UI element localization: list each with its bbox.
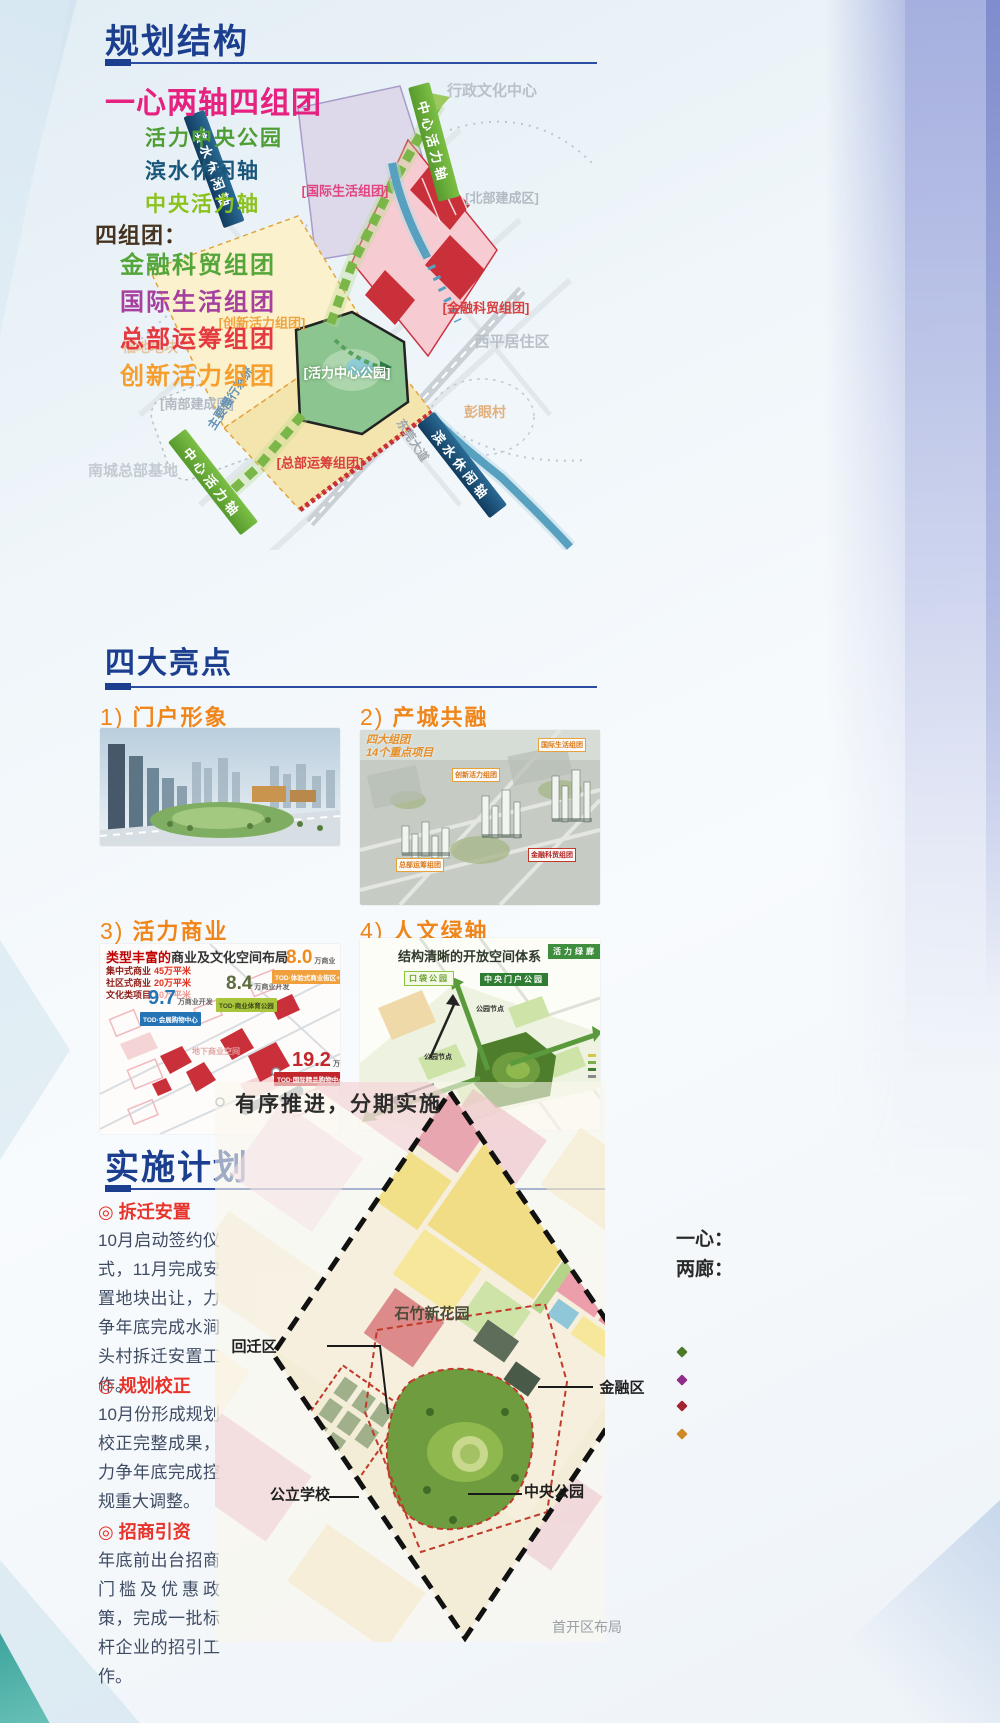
legend-diamond-orange bbox=[676, 1428, 687, 1439]
stat-2-label: 社区式商业 bbox=[106, 978, 151, 988]
section-rule bbox=[105, 62, 597, 64]
highlight-2-header: 2)产城共融 bbox=[360, 700, 488, 732]
phasing-map-illustration bbox=[215, 1082, 605, 1642]
context-arc-2 bbox=[450, 122, 592, 163]
central-gateway-park-chip: 中央门户公园 bbox=[480, 973, 548, 986]
side-label-one-heart: 一心： bbox=[676, 1224, 733, 1251]
marker-9-7: 9.7万商业开发 bbox=[148, 988, 213, 1009]
imp-block-3-body: 年底前出台招商门槛及优惠政策，完成一批标杆企业的招引工作。 bbox=[98, 1546, 220, 1691]
right-edge-strip bbox=[986, 0, 1000, 1000]
green-corridor-banner: 活力绿廊 bbox=[548, 944, 600, 959]
side-label-two-corridors: 两廊： bbox=[676, 1254, 733, 1281]
group-hq: 总部运筹组团 bbox=[120, 319, 276, 354]
highlight-3-number: 3) bbox=[100, 918, 124, 944]
marker-8-4-unit: 万商业开发 bbox=[254, 984, 289, 991]
map-label-hq-base: 南城总部基地 bbox=[88, 460, 178, 481]
map2-label-school: 公立学校 bbox=[270, 1484, 330, 1505]
marker-9-7-chip: TOD·会展购物中心 bbox=[140, 1012, 201, 1026]
left-edge-wedge bbox=[0, 940, 70, 1160]
imp-block-3-title: ◎ 招商引资 bbox=[98, 1518, 191, 1544]
aerial-chip-finance: 金融科贸组团 bbox=[528, 848, 576, 862]
legend-diamond-red bbox=[676, 1400, 687, 1411]
map-label-intl-group: [国际生活组团] bbox=[302, 181, 389, 200]
marker-19-2-value: 19.2 bbox=[292, 1049, 331, 1071]
marker-8-0-chip: TOD·体验式商业街区+MALL bbox=[272, 970, 340, 984]
map2-label-relocation: 回迁区 bbox=[231, 1336, 276, 1357]
commercial-title-rest: 商业及文化空间布局 bbox=[171, 950, 288, 965]
imp-block-3-title-text: 招商引资 bbox=[119, 1522, 191, 1542]
highlight-1-number: 1) bbox=[100, 704, 124, 730]
highlight-1-image bbox=[100, 728, 340, 846]
pocket-park-chip: 口袋公园 bbox=[404, 971, 454, 986]
map-label-central-park: [活力中心公园] bbox=[304, 363, 391, 382]
aerial-chip-intl: 国际生活组团 bbox=[538, 738, 586, 752]
green-map-title: 结构清晰的开放空间体系 bbox=[398, 946, 541, 965]
group-innovation: 创新活力组团 bbox=[120, 356, 276, 391]
axis-item-waterfront: 滨水休闲轴 bbox=[145, 155, 260, 185]
axis-item-central-vitality: 中央活力轴 bbox=[145, 188, 260, 218]
group-finance: 金融科贸组团 bbox=[120, 245, 276, 280]
underground-commercial-label: 地下商业空间 bbox=[192, 1046, 240, 1057]
highlight-1-title: 门户形象 bbox=[132, 705, 228, 730]
stat-1-label: 集中式商业 bbox=[106, 966, 151, 976]
highlight-3-title: 活力商业 bbox=[132, 919, 228, 944]
imp-block-1-title-text: 拆迁安置 bbox=[119, 1202, 191, 1222]
map-label-admin-center: 行政文化中心 bbox=[447, 80, 537, 101]
marker-8-0-value: 8.0 bbox=[286, 947, 312, 968]
legend-diamond-purple bbox=[676, 1374, 687, 1385]
ring-bullet-icon: ◎ bbox=[98, 1202, 114, 1222]
planning-subtitle: 一心两轴四组团 bbox=[105, 78, 322, 122]
marker-9-7-value: 9.7 bbox=[148, 987, 176, 1009]
ring-bullet-icon-2: ◎ bbox=[98, 1376, 114, 1396]
city-render-illustration bbox=[100, 728, 340, 846]
imp-block-1-title: ◎ 拆迁安置 bbox=[98, 1198, 191, 1224]
section-rule-2 bbox=[105, 686, 597, 688]
stat-centralized: 集中式商业45万平米 bbox=[106, 966, 191, 977]
map-label-pengyan: 彭眼村 bbox=[464, 402, 506, 422]
marker-9-7-unit: 万商业开发 bbox=[178, 999, 213, 1006]
section-title-planning: 规划结构 bbox=[105, 14, 249, 63]
highlight-2-number: 2) bbox=[360, 704, 384, 730]
highlight-3-header: 3)活力商业 bbox=[100, 914, 228, 946]
stat-1-value: 45万平米 bbox=[154, 966, 191, 976]
map2-caption: 首开区布局 bbox=[552, 1617, 622, 1637]
group-intl: 国际生活组团 bbox=[120, 282, 276, 317]
imp-block-2-title-text: 规划校正 bbox=[119, 1376, 191, 1396]
map-label-north-built: [北部建成区] bbox=[465, 188, 539, 207]
infographic-page: 规划结构 bbox=[0, 0, 1000, 1723]
section-title-highlights: 四大亮点 bbox=[105, 638, 233, 682]
map-label-finance-group: [金融科贸组团] bbox=[443, 298, 530, 317]
axis-item-central-park: 活力中央公园 bbox=[145, 122, 283, 152]
aerial-note-line2: 14个重点项目 bbox=[366, 747, 433, 760]
aerial-chip-innovation: 创新活力组团 bbox=[452, 768, 500, 782]
highlight-2-image: 四大组团 14个重点项目 创新活力组团 国际生活组团 总部运筹组团 金融科贸组团 bbox=[360, 730, 600, 905]
aerial-chip-hq: 总部运筹组团 bbox=[396, 858, 444, 872]
legend-diamond-green bbox=[676, 1346, 687, 1357]
park-node-label-1: 公园节点 bbox=[476, 1004, 504, 1014]
aerial-note-line1: 四大组团 bbox=[366, 734, 410, 747]
park-node-label-2: 公园节点 bbox=[424, 1052, 452, 1062]
imp-block-2-title: ◎ 规划校正 bbox=[98, 1372, 191, 1398]
marker-8-4-chip: TOD·商业体育公园 bbox=[216, 998, 277, 1012]
imp-block-2-body: 10月份形成规划校正完整成果，力争年底完成控规重大调整。 bbox=[98, 1400, 220, 1516]
map2-label-finance-zone: 金融区 bbox=[599, 1377, 644, 1398]
map-label-xiping: 西平居住区 bbox=[474, 331, 549, 352]
phasing-map-title: 有序推进，分期实施 bbox=[235, 1088, 442, 1118]
highlight-2-title: 产城共融 bbox=[392, 705, 488, 730]
map2-label-garden: 石竹新花园 bbox=[394, 1303, 469, 1324]
commercial-title-strong: 类型丰富的 bbox=[106, 950, 171, 965]
corner-decoration-bottom-right bbox=[760, 1500, 1000, 1723]
ring-bullet-icon-3: ◎ bbox=[98, 1522, 114, 1542]
map2-label-central-park: 中央公园 bbox=[524, 1481, 584, 1502]
marker-8-4-value: 8.4 bbox=[226, 973, 252, 994]
stat-3-label: 文化类项目 bbox=[106, 990, 151, 1000]
map-label-hq-group: [总部运筹组团] bbox=[277, 453, 364, 472]
commercial-map-title: 类型丰富的商业及文化空间布局 bbox=[106, 947, 288, 966]
